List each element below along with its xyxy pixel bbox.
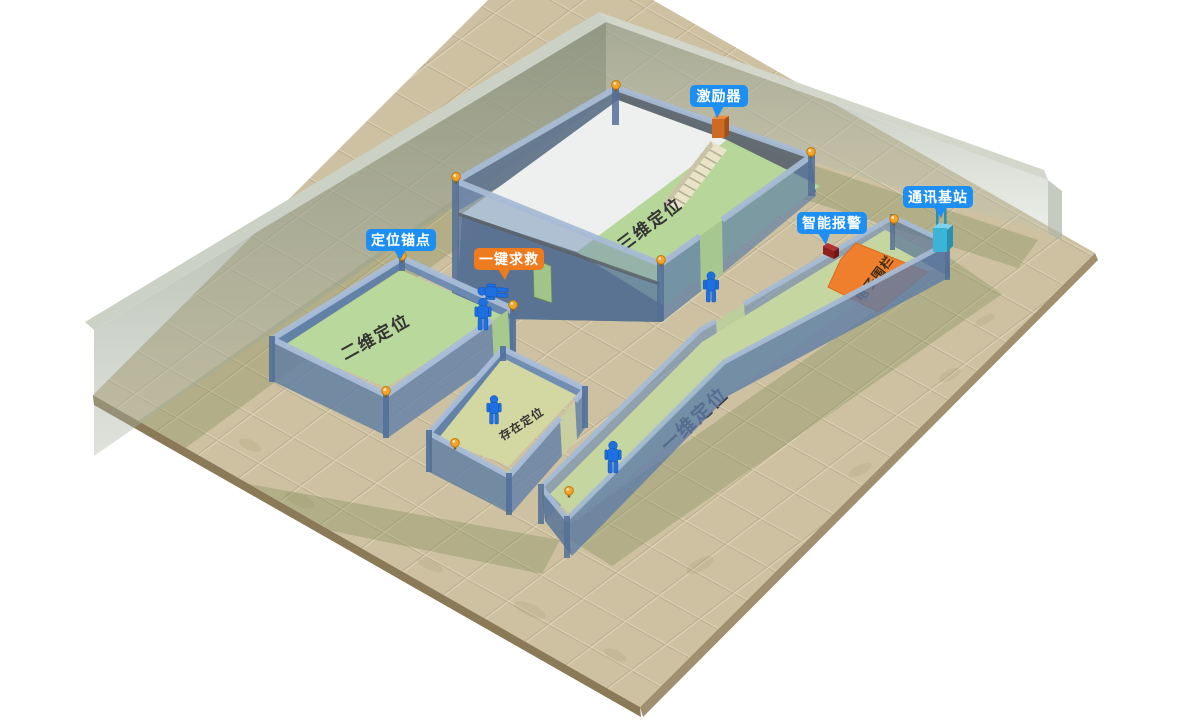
- scene: 三维定位 电子围栏 一维定位: [0, 0, 1200, 723]
- badge-smart-alarm-label: 智能报警: [801, 215, 862, 231]
- perimeter-wall-right-end: [1048, 180, 1062, 241]
- exciter-side: [725, 116, 730, 138]
- badge-exciter-label: 激励器: [697, 88, 742, 104]
- scene-canvas: 三维定位 电子围栏 一维定位: [0, 0, 1200, 723]
- station-front: [933, 228, 947, 252]
- badge-sos-label: 一键求救: [479, 251, 539, 267]
- badge-comm-base-station-label: 通讯基站: [908, 189, 968, 205]
- exciter-device[interactable]: [712, 115, 729, 138]
- badge-anchor-point-label: 定位锚点: [371, 232, 431, 248]
- exciter-front: [712, 119, 725, 138]
